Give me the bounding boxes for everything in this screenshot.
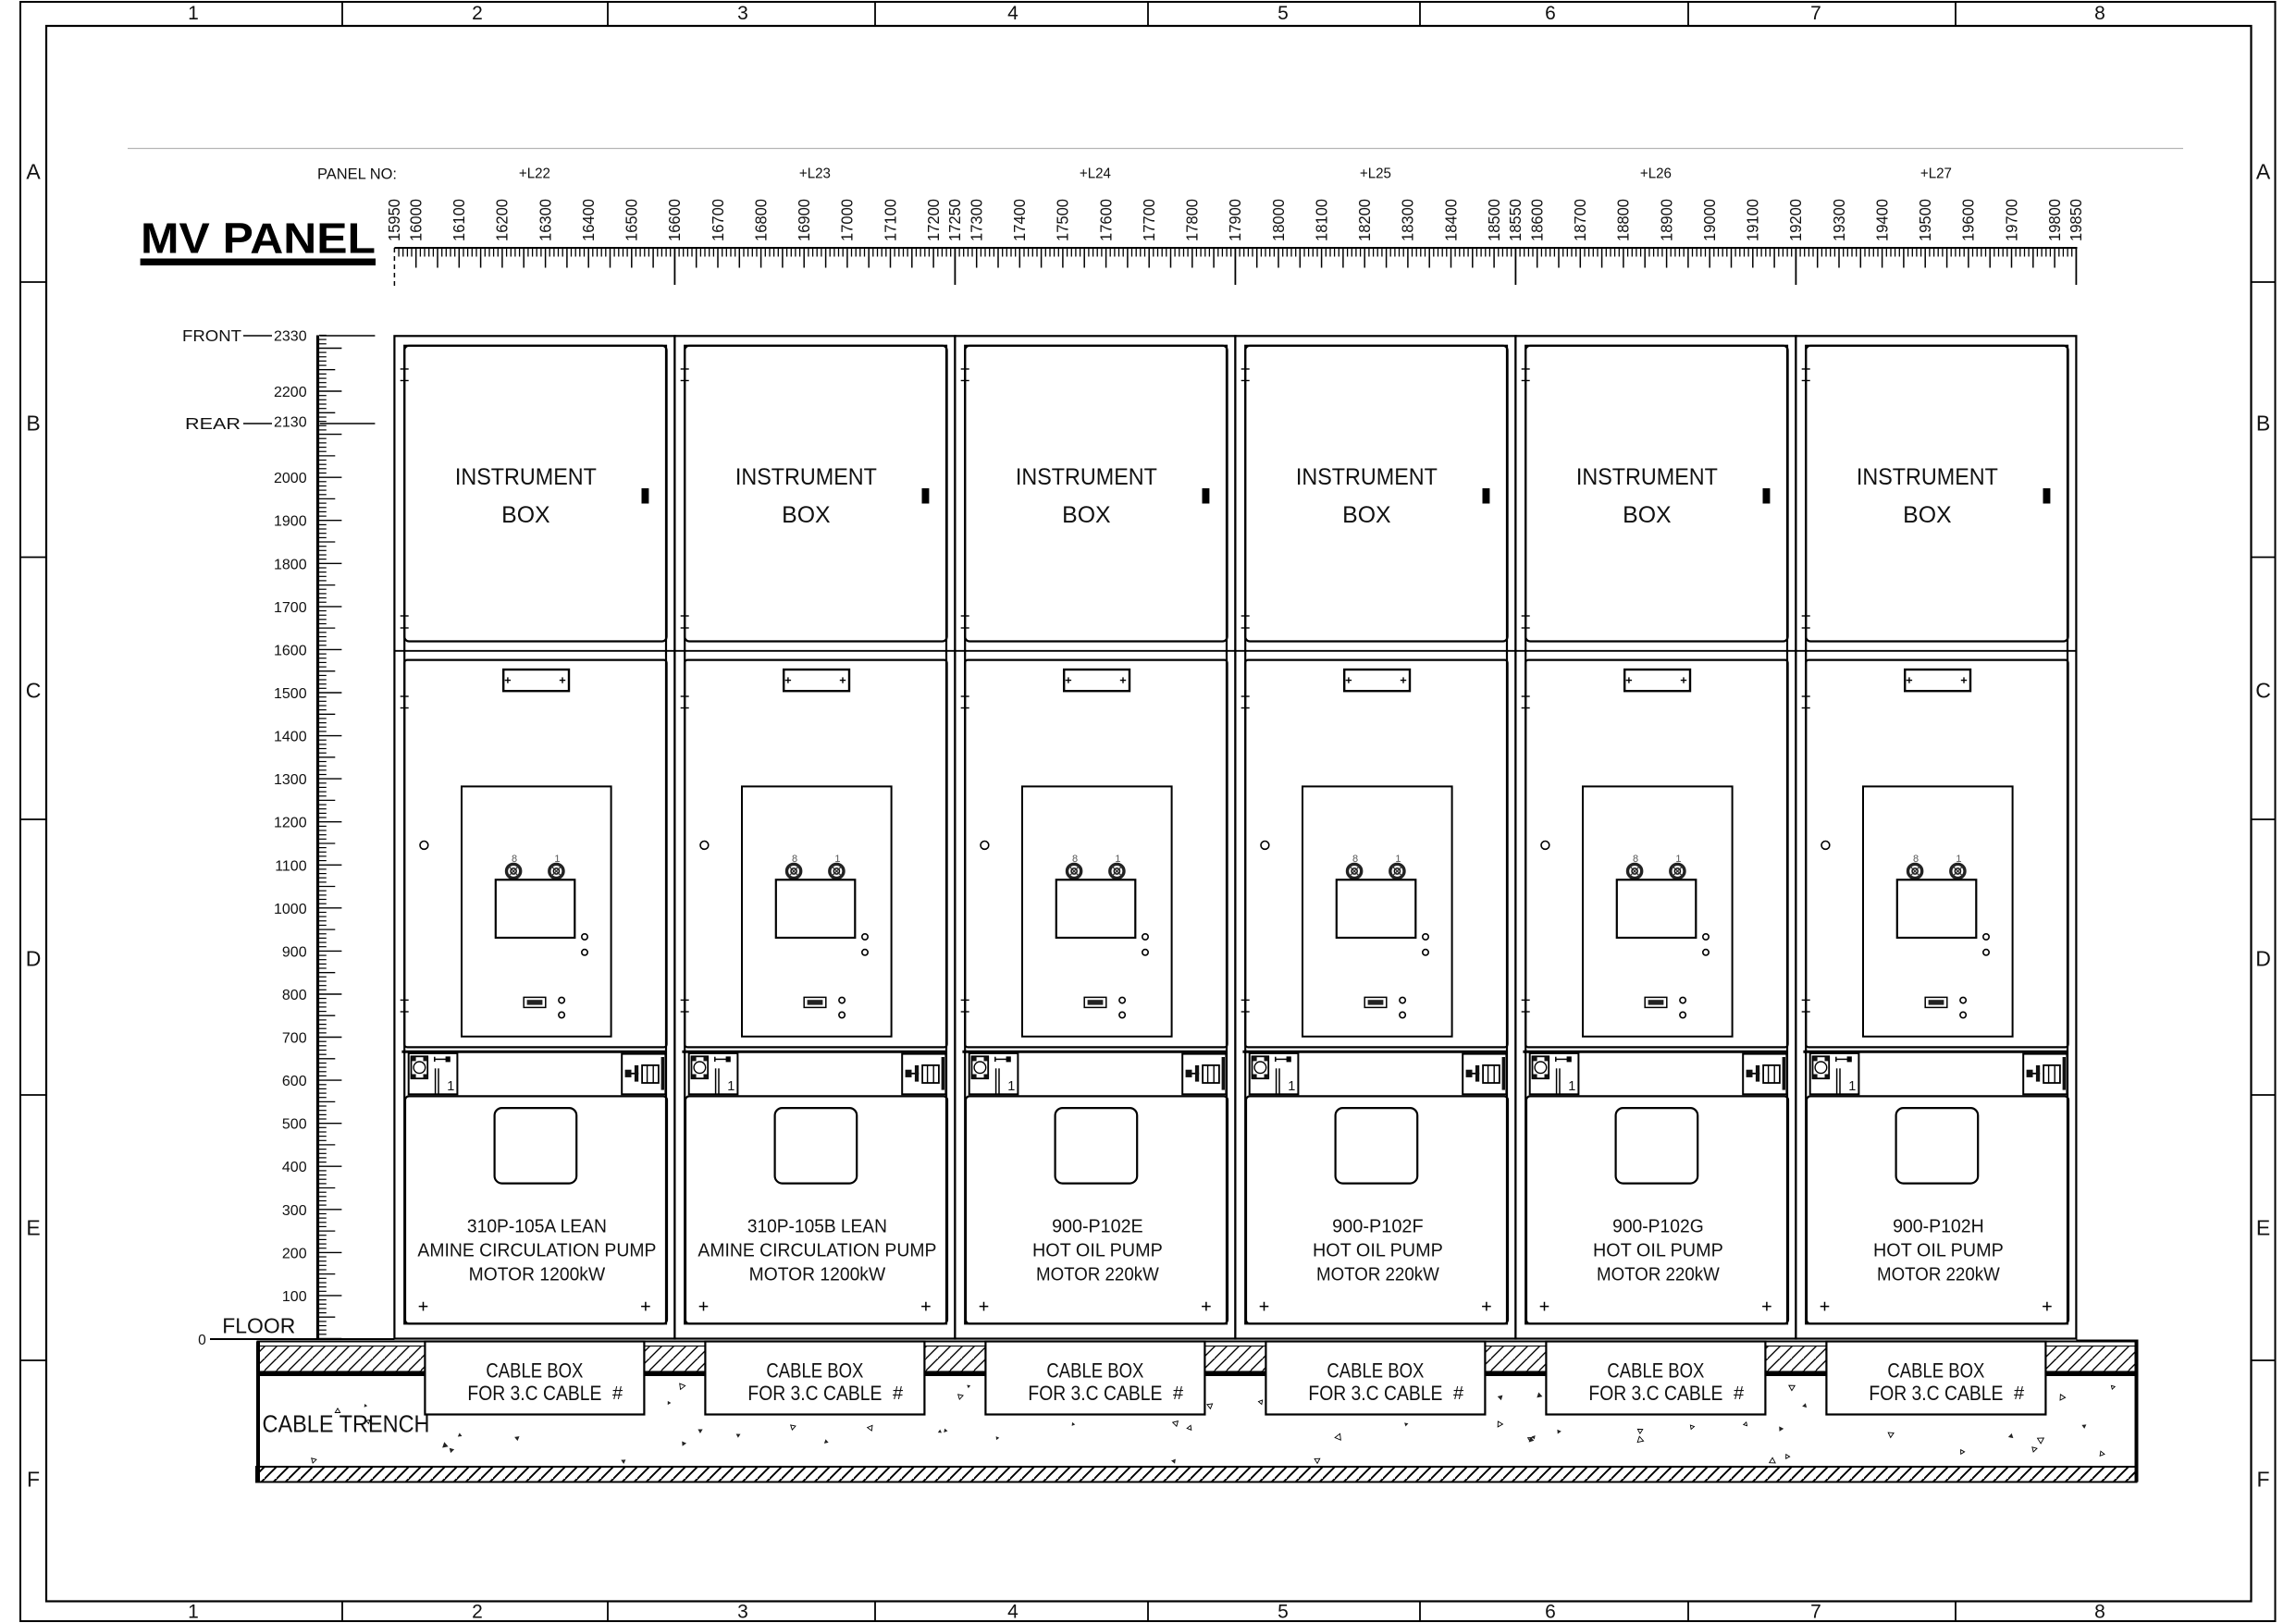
svg-text:1: 1 bbox=[1848, 1079, 1856, 1094]
svg-text:3: 3 bbox=[737, 3, 748, 24]
svg-text:1: 1 bbox=[1395, 854, 1401, 865]
svg-text:AMINE CIRCULATION PUMP: AMINE CIRCULATION PUMP bbox=[697, 1240, 936, 1260]
svg-text:100: 100 bbox=[282, 1289, 307, 1305]
svg-text:16200: 16200 bbox=[493, 199, 512, 241]
svg-text:17200: 17200 bbox=[924, 199, 943, 241]
svg-text:8: 8 bbox=[1352, 854, 1358, 865]
svg-text:#: # bbox=[1734, 1383, 1745, 1404]
svg-text:900-P102H: 900-P102H bbox=[1893, 1216, 1984, 1236]
svg-text:FOR 3.C CABLE: FOR 3.C CABLE bbox=[467, 1382, 601, 1405]
svg-text:HOT OIL PUMP: HOT OIL PUMP bbox=[1873, 1240, 2004, 1260]
svg-text:MOTOR 220kW: MOTOR 220kW bbox=[1036, 1264, 1159, 1285]
svg-text:INSTRUMENT: INSTRUMENT bbox=[735, 464, 877, 490]
svg-text:D: D bbox=[2255, 947, 2271, 971]
svg-text:2000: 2000 bbox=[274, 471, 307, 486]
svg-text:HOT OIL PUMP: HOT OIL PUMP bbox=[1313, 1240, 1443, 1260]
svg-text:INSTRUMENT: INSTRUMENT bbox=[455, 464, 597, 490]
svg-text:HOT OIL PUMP: HOT OIL PUMP bbox=[1032, 1240, 1163, 1260]
svg-text:6: 6 bbox=[1545, 1602, 1556, 1623]
svg-text:CABLE BOX: CABLE BOX bbox=[1607, 1359, 1704, 1382]
svg-text:800: 800 bbox=[282, 988, 307, 1003]
svg-text:#: # bbox=[1453, 1383, 1464, 1404]
svg-text:1: 1 bbox=[834, 854, 840, 865]
svg-text:18500: 18500 bbox=[1485, 199, 1503, 241]
svg-text:19800: 19800 bbox=[2045, 199, 2064, 241]
svg-text:1700: 1700 bbox=[274, 600, 307, 616]
svg-text:C: C bbox=[26, 679, 42, 703]
svg-text:8: 8 bbox=[1633, 854, 1638, 865]
svg-text:BOX: BOX bbox=[1342, 502, 1391, 528]
svg-text:PANEL NO:: PANEL NO: bbox=[317, 166, 397, 183]
svg-text:FOR 3.C CABLE: FOR 3.C CABLE bbox=[1588, 1382, 1722, 1405]
svg-text:CABLE BOX: CABLE BOX bbox=[1887, 1359, 1984, 1382]
svg-text:INSTRUMENT: INSTRUMENT bbox=[1016, 464, 1157, 490]
svg-text:CABLE BOX: CABLE BOX bbox=[1327, 1359, 1424, 1382]
svg-text:CABLE TRENCH: CABLE TRENCH bbox=[263, 1412, 430, 1438]
svg-text:BOX: BOX bbox=[782, 502, 831, 528]
svg-text:#: # bbox=[2014, 1383, 2025, 1404]
svg-text:16800: 16800 bbox=[751, 199, 770, 241]
svg-text:#: # bbox=[612, 1383, 623, 1404]
svg-text:MV PANEL: MV PANEL bbox=[141, 215, 376, 263]
svg-text:300: 300 bbox=[282, 1203, 307, 1219]
svg-text:E: E bbox=[2256, 1216, 2270, 1240]
svg-text:F: F bbox=[27, 1468, 40, 1492]
svg-text:7: 7 bbox=[1810, 1602, 1821, 1623]
svg-text:18100: 18100 bbox=[1312, 199, 1330, 241]
svg-text:19700: 19700 bbox=[2002, 199, 2020, 241]
svg-text:0: 0 bbox=[198, 1333, 206, 1348]
svg-text:17900: 17900 bbox=[1226, 199, 1244, 241]
svg-text:BOX: BOX bbox=[1623, 502, 1672, 528]
svg-text:1: 1 bbox=[727, 1079, 734, 1094]
svg-text:16400: 16400 bbox=[579, 199, 598, 241]
svg-text:F: F bbox=[2256, 1468, 2269, 1492]
svg-text:+L22: +L22 bbox=[519, 166, 550, 182]
svg-text:+L26: +L26 bbox=[1640, 166, 1672, 182]
svg-text:600: 600 bbox=[282, 1074, 307, 1089]
svg-text:CABLE BOX: CABLE BOX bbox=[1046, 1359, 1143, 1382]
svg-text:18700: 18700 bbox=[1571, 199, 1589, 241]
svg-text:700: 700 bbox=[282, 1031, 307, 1047]
svg-text:900: 900 bbox=[282, 944, 307, 960]
svg-text:1: 1 bbox=[188, 3, 199, 24]
svg-text:19000: 19000 bbox=[1700, 199, 1719, 241]
svg-text:+L25: +L25 bbox=[1360, 166, 1391, 182]
svg-text:#: # bbox=[893, 1383, 904, 1404]
svg-text:1000: 1000 bbox=[274, 902, 307, 917]
svg-text:16100: 16100 bbox=[450, 199, 468, 241]
svg-text:2200: 2200 bbox=[274, 385, 307, 400]
svg-text:FOR 3.C CABLE: FOR 3.C CABLE bbox=[1308, 1382, 1442, 1405]
svg-text:17500: 17500 bbox=[1054, 199, 1072, 241]
svg-text:8: 8 bbox=[792, 854, 797, 865]
svg-text:18400: 18400 bbox=[1441, 199, 1460, 241]
svg-text:1: 1 bbox=[1956, 854, 1961, 865]
svg-text:4: 4 bbox=[1007, 1602, 1018, 1623]
svg-text:FOR 3.C CABLE: FOR 3.C CABLE bbox=[747, 1382, 882, 1405]
svg-text:900-P102E: 900-P102E bbox=[1052, 1216, 1143, 1236]
svg-text:CABLE BOX: CABLE BOX bbox=[766, 1359, 863, 1382]
svg-text:8: 8 bbox=[1913, 854, 1919, 865]
svg-text:B: B bbox=[26, 412, 40, 436]
svg-text:8: 8 bbox=[1072, 854, 1078, 865]
svg-text:HOT OIL PUMP: HOT OIL PUMP bbox=[1593, 1240, 1723, 1260]
svg-text:19400: 19400 bbox=[1872, 199, 1891, 241]
svg-text:5: 5 bbox=[1278, 1602, 1289, 1623]
svg-text:200: 200 bbox=[282, 1246, 307, 1261]
svg-text:3: 3 bbox=[737, 1602, 748, 1623]
svg-text:1: 1 bbox=[1007, 1079, 1015, 1094]
svg-text:18550: 18550 bbox=[1506, 199, 1524, 241]
svg-text:INSTRUMENT: INSTRUMENT bbox=[1857, 464, 1998, 490]
svg-text:2130: 2130 bbox=[274, 415, 307, 431]
svg-text:C: C bbox=[2255, 679, 2271, 703]
svg-text:16700: 16700 bbox=[709, 199, 727, 241]
svg-text:17100: 17100 bbox=[881, 199, 899, 241]
svg-text:8: 8 bbox=[2094, 3, 2105, 24]
svg-text:2: 2 bbox=[472, 1602, 483, 1623]
svg-text:17250: 17250 bbox=[945, 199, 964, 241]
svg-text:2: 2 bbox=[472, 3, 483, 24]
svg-text:1: 1 bbox=[1115, 854, 1120, 865]
svg-text:1300: 1300 bbox=[274, 772, 307, 788]
svg-text:19300: 19300 bbox=[1830, 199, 1848, 241]
svg-text:17300: 17300 bbox=[968, 199, 986, 241]
svg-text:BOX: BOX bbox=[1903, 502, 1952, 528]
svg-text:1: 1 bbox=[447, 1079, 454, 1094]
svg-text:900-P102G: 900-P102G bbox=[1612, 1216, 1704, 1236]
svg-text:17700: 17700 bbox=[1140, 199, 1158, 241]
svg-text:D: D bbox=[26, 947, 42, 971]
svg-text:FOR 3.C CABLE: FOR 3.C CABLE bbox=[1028, 1382, 1162, 1405]
svg-text:A: A bbox=[26, 160, 41, 184]
svg-text:FRONT: FRONT bbox=[182, 326, 241, 345]
svg-text:19600: 19600 bbox=[1959, 199, 1978, 241]
svg-text:310P-105B LEAN: 310P-105B LEAN bbox=[747, 1216, 887, 1236]
svg-text:17600: 17600 bbox=[1096, 199, 1115, 241]
svg-text:18600: 18600 bbox=[1528, 199, 1547, 241]
svg-text:A: A bbox=[2256, 160, 2271, 184]
svg-text:16600: 16600 bbox=[665, 199, 684, 241]
svg-text:18000: 18000 bbox=[1269, 199, 1288, 241]
svg-text:17400: 17400 bbox=[1010, 199, 1029, 241]
svg-text:16300: 16300 bbox=[536, 199, 554, 241]
svg-text:19500: 19500 bbox=[1916, 199, 1934, 241]
svg-text:7: 7 bbox=[1810, 3, 1821, 24]
svg-text:18200: 18200 bbox=[1355, 199, 1374, 241]
svg-text:1100: 1100 bbox=[275, 858, 307, 874]
svg-text:MOTOR 1200kW: MOTOR 1200kW bbox=[749, 1264, 886, 1285]
svg-text:400: 400 bbox=[282, 1160, 307, 1175]
svg-text:4: 4 bbox=[1007, 3, 1018, 24]
svg-text:17800: 17800 bbox=[1183, 199, 1202, 241]
svg-text:18300: 18300 bbox=[1399, 199, 1417, 241]
svg-text:16500: 16500 bbox=[623, 199, 641, 241]
svg-text:1600: 1600 bbox=[274, 643, 307, 658]
svg-text:FLOOR: FLOOR bbox=[222, 1314, 295, 1338]
svg-text:1200: 1200 bbox=[274, 816, 307, 831]
svg-text:5: 5 bbox=[1278, 3, 1289, 24]
svg-text:BOX: BOX bbox=[1062, 502, 1111, 528]
svg-text:17000: 17000 bbox=[838, 199, 857, 241]
svg-text:16900: 16900 bbox=[795, 199, 813, 241]
svg-text:310P-105A LEAN: 310P-105A LEAN bbox=[467, 1216, 607, 1236]
svg-text:19200: 19200 bbox=[1786, 199, 1805, 241]
svg-text:18800: 18800 bbox=[1614, 199, 1633, 241]
svg-text:+L24: +L24 bbox=[1080, 166, 1111, 182]
svg-text:19850: 19850 bbox=[2067, 199, 2085, 241]
svg-text:E: E bbox=[26, 1216, 40, 1240]
svg-text:REAR: REAR bbox=[185, 414, 241, 433]
svg-text:1900: 1900 bbox=[274, 514, 307, 530]
svg-text:900-P102F: 900-P102F bbox=[1332, 1216, 1424, 1236]
svg-text:INSTRUMENT: INSTRUMENT bbox=[1576, 464, 1718, 490]
svg-text:MOTOR 220kW: MOTOR 220kW bbox=[1597, 1264, 1720, 1285]
svg-text:500: 500 bbox=[282, 1117, 307, 1133]
svg-text:16000: 16000 bbox=[407, 199, 426, 241]
svg-text:+L23: +L23 bbox=[799, 166, 831, 182]
svg-text:#: # bbox=[1173, 1383, 1184, 1404]
svg-text:BOX: BOX bbox=[501, 502, 550, 528]
svg-text:B: B bbox=[2256, 412, 2270, 436]
svg-text:FOR 3.C CABLE: FOR 3.C CABLE bbox=[1869, 1382, 2003, 1405]
svg-text:AMINE CIRCULATION PUMP: AMINE CIRCULATION PUMP bbox=[417, 1240, 656, 1260]
svg-text:6: 6 bbox=[1545, 3, 1556, 24]
svg-text:1400: 1400 bbox=[274, 730, 307, 745]
svg-text:8: 8 bbox=[512, 854, 517, 865]
svg-text:15950: 15950 bbox=[385, 199, 403, 241]
svg-text:+L27: +L27 bbox=[1920, 166, 1952, 182]
svg-text:MOTOR 220kW: MOTOR 220kW bbox=[1877, 1264, 2000, 1285]
svg-text:1: 1 bbox=[1675, 854, 1681, 865]
svg-text:2330: 2330 bbox=[274, 329, 307, 345]
svg-text:1: 1 bbox=[188, 1602, 199, 1623]
svg-text:MOTOR 220kW: MOTOR 220kW bbox=[1316, 1264, 1439, 1285]
svg-text:1800: 1800 bbox=[274, 557, 307, 572]
svg-text:INSTRUMENT: INSTRUMENT bbox=[1296, 464, 1438, 490]
svg-text:1: 1 bbox=[554, 854, 560, 865]
svg-text:1: 1 bbox=[1568, 1079, 1575, 1094]
svg-text:1: 1 bbox=[1288, 1079, 1295, 1094]
svg-text:1500: 1500 bbox=[274, 686, 307, 702]
svg-text:18900: 18900 bbox=[1657, 199, 1675, 241]
svg-text:8: 8 bbox=[2094, 1602, 2105, 1623]
svg-text:CABLE BOX: CABLE BOX bbox=[486, 1359, 583, 1382]
svg-text:MOTOR 1200kW: MOTOR 1200kW bbox=[469, 1264, 606, 1285]
svg-text:19100: 19100 bbox=[1744, 199, 1762, 241]
